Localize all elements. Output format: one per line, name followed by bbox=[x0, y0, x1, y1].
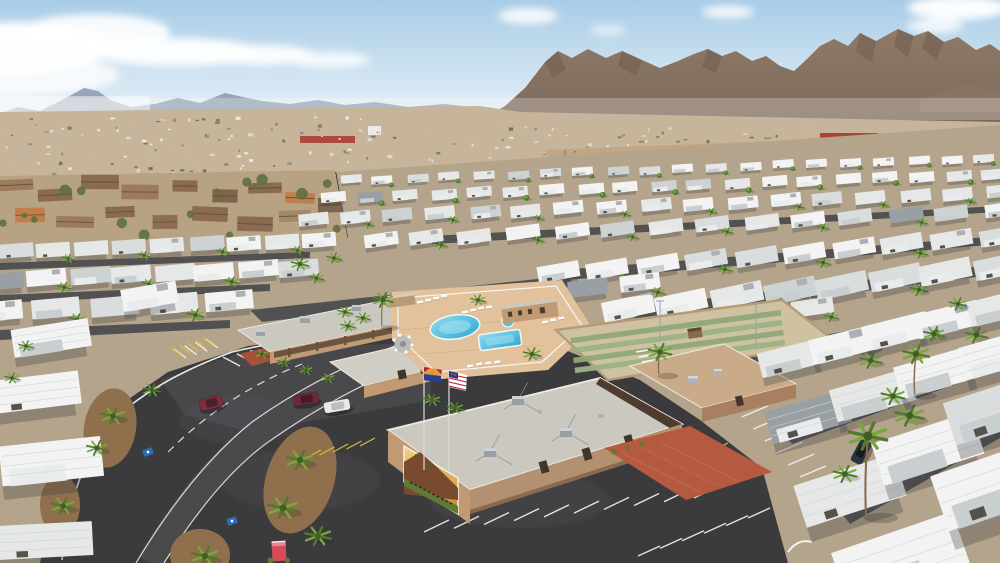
mobile-home bbox=[298, 212, 330, 231]
white-building bbox=[368, 126, 381, 135]
mobile-home bbox=[70, 266, 112, 291]
mobile-home bbox=[407, 174, 429, 186]
mobile-home bbox=[0, 271, 25, 296]
mobile-home bbox=[728, 195, 760, 214]
mobile-home bbox=[909, 171, 935, 187]
mobile-home bbox=[612, 181, 638, 197]
red-roof-strip bbox=[300, 136, 355, 143]
mobile-home bbox=[149, 237, 184, 258]
mobile-home bbox=[806, 158, 828, 170]
mobile-home bbox=[672, 163, 694, 175]
mobile-home bbox=[641, 197, 673, 216]
aerial-photo: Aerial drone view of a desert mobile hom… bbox=[0, 0, 1000, 563]
mobile-home bbox=[539, 183, 565, 199]
mobile-home bbox=[74, 240, 109, 261]
mobile-home bbox=[740, 162, 762, 174]
mobile-home bbox=[980, 168, 1000, 184]
mobile-home bbox=[238, 259, 280, 284]
mobile-home bbox=[553, 200, 585, 219]
mobile-home bbox=[470, 204, 502, 223]
mobile-home bbox=[608, 166, 630, 178]
mobile-home bbox=[685, 178, 711, 194]
mobile-home bbox=[811, 191, 843, 210]
mobile-home bbox=[466, 186, 492, 202]
mobile-home bbox=[473, 170, 495, 182]
mobile-home bbox=[942, 155, 964, 167]
mobile-home bbox=[341, 174, 363, 186]
mobile-home bbox=[0, 242, 34, 263]
mobile-home bbox=[204, 289, 254, 319]
mobile-home bbox=[900, 188, 932, 207]
mobile-home bbox=[540, 168, 562, 180]
mobile-home bbox=[873, 157, 895, 169]
mobile-home bbox=[0, 521, 94, 563]
mobile-home bbox=[762, 175, 788, 191]
mobile-home bbox=[321, 191, 347, 207]
mobile-home bbox=[381, 207, 413, 226]
mobile-home bbox=[301, 232, 336, 253]
mobile-home bbox=[226, 235, 261, 256]
mobile-home bbox=[836, 172, 862, 188]
mobile-home bbox=[392, 189, 418, 205]
